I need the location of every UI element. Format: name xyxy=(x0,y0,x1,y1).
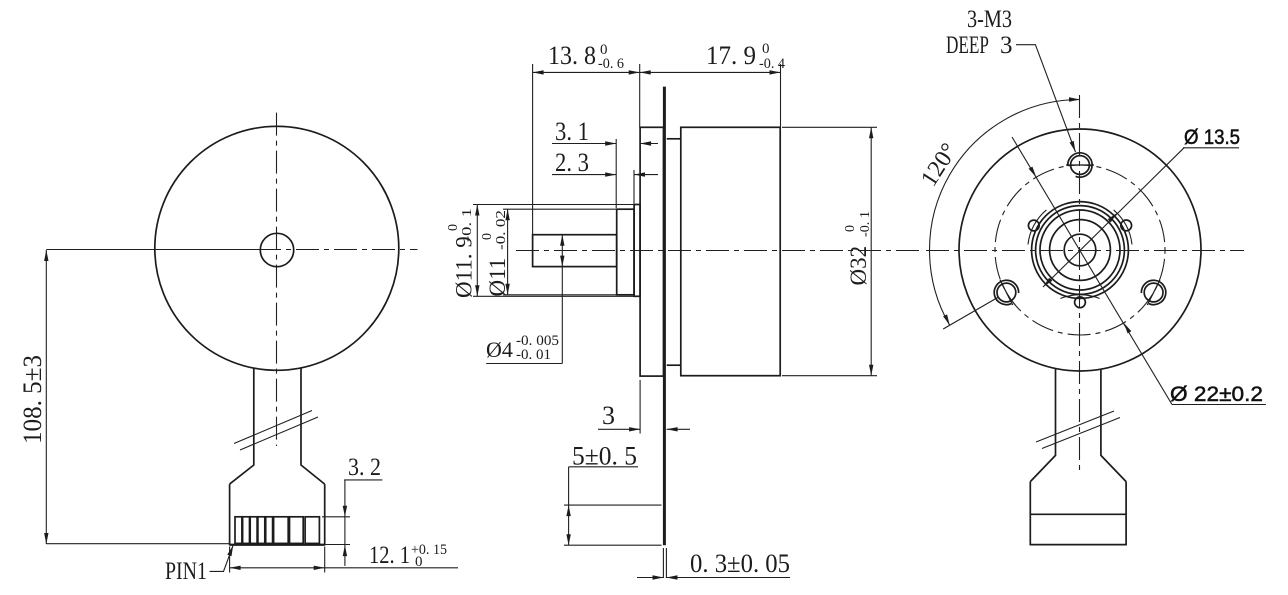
svg-text:0: 0 xyxy=(446,224,461,231)
svg-text:3. 2: 3. 2 xyxy=(348,454,381,481)
svg-text:-0. 02: -0. 02 xyxy=(494,210,509,250)
svg-text:0: 0 xyxy=(762,41,770,57)
svg-text:-0. 1: -0. 1 xyxy=(460,208,475,242)
svg-text:0: 0 xyxy=(480,233,495,240)
svg-text:12. 1: 12. 1 xyxy=(369,542,410,569)
svg-text:-0. 4: -0. 4 xyxy=(759,56,785,72)
svg-text:PIN1: PIN1 xyxy=(165,558,207,585)
svg-text:3: 3 xyxy=(602,401,615,430)
svg-text:DEEP: DEEP xyxy=(946,32,989,59)
svg-text:Ø4: Ø4 xyxy=(486,337,513,362)
svg-text:-0. 1: -0. 1 xyxy=(858,211,873,237)
svg-text:-0. 6: -0. 6 xyxy=(598,56,624,72)
svg-text:2. 3: 2. 3 xyxy=(555,148,589,177)
svg-text:0: 0 xyxy=(843,225,858,232)
svg-text:0. 3±0. 05: 0. 3±0. 05 xyxy=(690,549,790,578)
svg-text:Ø32: Ø32 xyxy=(846,246,871,286)
svg-text:Ø 22±0.2: Ø 22±0.2 xyxy=(1170,382,1263,406)
svg-text:5±0. 5: 5±0. 5 xyxy=(572,442,637,471)
svg-text:17. 9: 17. 9 xyxy=(706,41,756,70)
svg-text:Ø 13.5: Ø 13.5 xyxy=(1184,126,1240,149)
svg-text:13. 8: 13. 8 xyxy=(548,41,596,70)
svg-text:-0. 01: -0. 01 xyxy=(516,347,551,363)
svg-text:0: 0 xyxy=(415,554,423,570)
svg-text:3: 3 xyxy=(1000,32,1013,59)
svg-text:Ø11. 9: Ø11. 9 xyxy=(452,236,477,298)
svg-text:3-M3: 3-M3 xyxy=(967,6,1012,33)
svg-text:Ø11: Ø11 xyxy=(485,258,510,297)
svg-text:3. 1: 3. 1 xyxy=(555,117,589,146)
svg-text:108. 5±3: 108. 5±3 xyxy=(18,355,47,444)
